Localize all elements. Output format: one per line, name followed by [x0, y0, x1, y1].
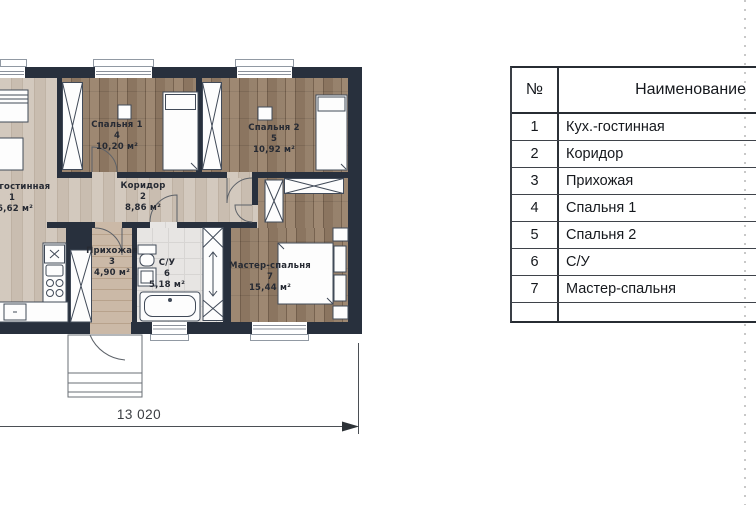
dimension-arrow-icon: [342, 422, 359, 432]
rooms-table: № Наименование 1 Кух.-гостинная 2 Коридо…: [510, 66, 756, 323]
room-name: Спальня 1: [57, 120, 177, 131]
table-row: 7 Мастер-спальня: [512, 276, 756, 303]
room-area: 8,86 м²: [83, 203, 203, 214]
room-area: 26,62 м²: [0, 204, 72, 215]
cell-name: Спальня 2: [559, 222, 756, 248]
cell-number: 6: [512, 249, 559, 275]
cell-number: 5: [512, 222, 559, 248]
drawing-canvas: Кух.-гостинная 1 26,62 м² Коридор 2 8,86…: [0, 0, 756, 505]
sofa: [0, 138, 23, 170]
door-arc-bedroom2: [227, 178, 252, 203]
table-row: 5 Спальня 2: [512, 222, 756, 249]
room-number: 1: [0, 193, 72, 204]
cell-number: 7: [512, 276, 559, 302]
table-row: 1 Кух.-гостинная: [512, 114, 756, 141]
cell-name: Прихожая: [559, 168, 756, 194]
cell-number: 3: [512, 168, 559, 194]
room-name: Прихожая: [52, 246, 172, 257]
cell-number: 4: [512, 195, 559, 221]
table-header-number: №: [512, 68, 559, 112]
label-bedroom2: Спальня 2 5 10,92 м²: [214, 123, 334, 156]
label-living: Кух.-гостинная 1 26,62 м²: [0, 182, 72, 215]
label-bedroom1: Спальня 1 4 10,20 м²: [57, 120, 177, 153]
table-header-row: № Наименование: [512, 68, 756, 114]
cell-name: С/У: [559, 249, 756, 275]
room-name: Кух.-гостинная: [0, 182, 72, 193]
nightstand-bedroom1: [118, 105, 131, 119]
dimension-value: 13 020: [79, 407, 199, 422]
label-corridor: Коридор 2 8,86 м²: [83, 181, 203, 214]
cell-name: Коридор: [559, 141, 756, 167]
table-row: 2 Коридор: [512, 141, 756, 168]
bathtub-icon: [140, 292, 200, 321]
label-bathroom: С/У 6 5,18 м²: [107, 258, 227, 291]
cell-number: 2: [512, 141, 559, 167]
table-row: 6 С/У: [512, 249, 756, 276]
table-row: 4 Спальня 1: [512, 195, 756, 222]
porch-steps: [68, 335, 142, 397]
wardrobe-icon: [285, 179, 344, 194]
room-name: Спальня 2: [214, 123, 334, 134]
room-area: 10,92 м²: [214, 145, 334, 156]
room-area: 5,18 м²: [107, 280, 227, 291]
cell-number: [512, 303, 559, 321]
table-header-name: Наименование: [559, 68, 756, 112]
nightstand-bedroom2: [258, 107, 272, 120]
room-number: 7: [210, 272, 330, 283]
room-number: 2: [83, 192, 203, 203]
table-row: 3 Прихожая: [512, 168, 756, 195]
cell-name: Мастер-спальня: [559, 276, 756, 302]
room-name: Коридор: [83, 181, 203, 192]
label-master: Мастер-спальня 7 15,44 м²: [210, 261, 330, 294]
wardrobe-icon: [265, 180, 283, 222]
room-name: Мастер-спальня: [210, 261, 330, 272]
cell-name: [559, 303, 756, 321]
room-area: 15,44 м²: [210, 283, 330, 294]
dining-table: [0, 90, 28, 122]
room-area: 10,20 м²: [57, 142, 177, 153]
room-name: С/У: [107, 258, 227, 269]
cell-name: Кух.-гостинная: [559, 114, 756, 140]
cell-number: 1: [512, 114, 559, 140]
door-arc-entry: [90, 335, 125, 360]
cell-name: Спальня 1: [559, 195, 756, 221]
room-number: 5: [214, 134, 334, 145]
page-margin-dashed-line: [744, 0, 746, 505]
room-number: 4: [57, 131, 177, 142]
door-arc-master: [235, 205, 252, 222]
table-row-empty: [512, 303, 756, 321]
room-number: 6: [107, 269, 227, 280]
